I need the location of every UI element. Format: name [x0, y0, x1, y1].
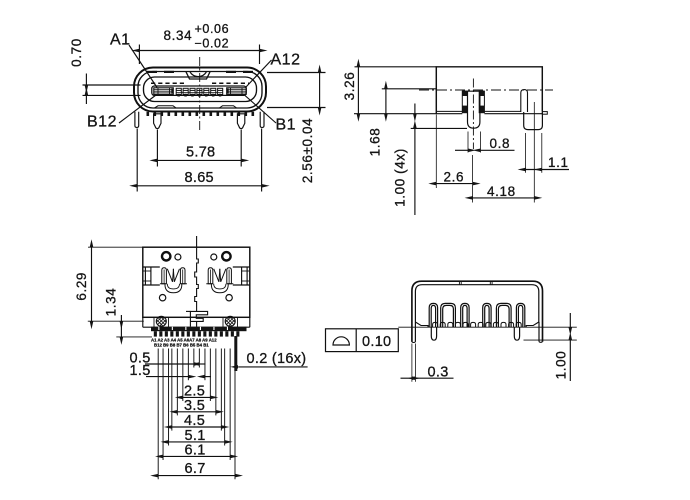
- svg-text:6.7: 6.7: [185, 461, 206, 477]
- svg-text:−0.02: −0.02: [195, 37, 230, 51]
- svg-text:3.5: 3.5: [184, 398, 205, 414]
- svg-text:0.70: 0.70: [69, 38, 84, 67]
- svg-text:1.34: 1.34: [104, 288, 119, 317]
- svg-text:1.68: 1.68: [368, 128, 383, 157]
- svg-text:1.00 (4x): 1.00 (4x): [393, 148, 408, 207]
- svg-text:8.34: 8.34: [164, 28, 193, 43]
- svg-text:6.1: 6.1: [185, 443, 206, 459]
- svg-text:5.78: 5.78: [186, 145, 215, 161]
- svg-text:0.2 (16x): 0.2 (16x): [247, 351, 307, 367]
- svg-text:4.18: 4.18: [487, 184, 516, 199]
- svg-text:4.5: 4.5: [184, 413, 205, 429]
- svg-text:+0.06: +0.06: [195, 22, 230, 36]
- svg-text:0.3: 0.3: [428, 364, 449, 380]
- svg-text:3.26: 3.26: [342, 72, 357, 101]
- svg-text:B12 B9 B8 B7 B6 B5 B4 B1: B12 B9 B8 B7 B6 B5 B4 B1: [154, 343, 209, 348]
- svg-text:1.5: 1.5: [130, 363, 151, 379]
- svg-text:0.10: 0.10: [362, 334, 391, 350]
- svg-text:6.29: 6.29: [74, 272, 89, 301]
- svg-text:0.8: 0.8: [490, 136, 511, 151]
- svg-text:B1: B1: [276, 117, 297, 134]
- svg-text:A12: A12: [271, 52, 301, 69]
- svg-text:B12: B12: [87, 114, 117, 131]
- svg-text:2.6: 2.6: [444, 170, 465, 185]
- svg-text:2.56±0.04: 2.56±0.04: [300, 118, 315, 183]
- svg-text:A1: A1: [110, 32, 131, 49]
- svg-text:8.65: 8.65: [185, 170, 214, 186]
- svg-text:1.00: 1.00: [554, 351, 569, 380]
- svg-text:1.1: 1.1: [548, 155, 569, 170]
